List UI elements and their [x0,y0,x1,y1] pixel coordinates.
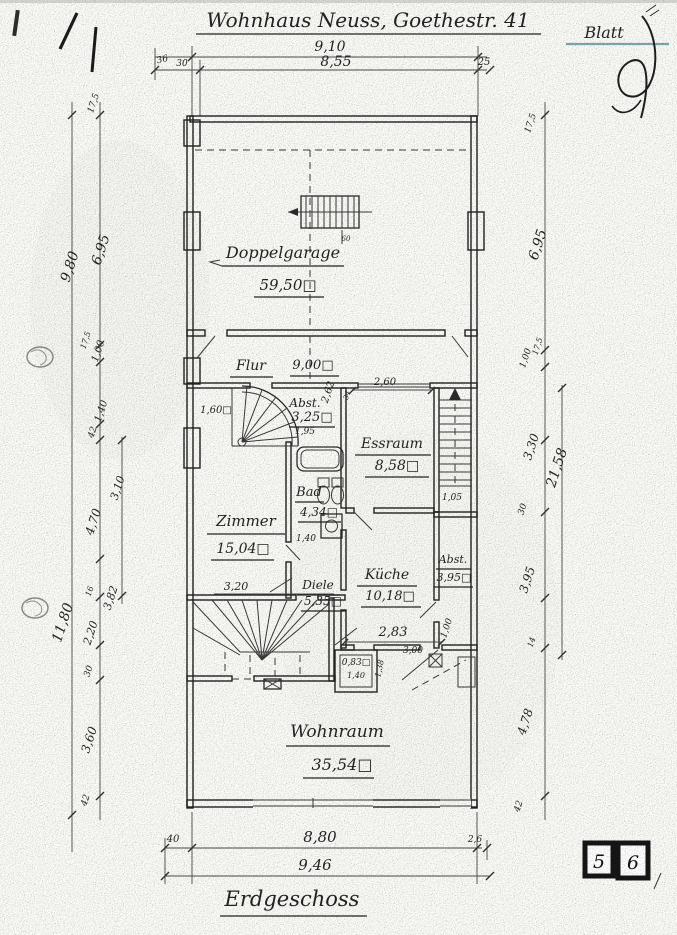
scanned-floor-plan-page: Wohnhaus Neuss, Goethestr. 41 Blatt 9,10… [0,0,677,935]
floor-plan-drawing: Wohnhaus Neuss, Goethestr. 41 Blatt 9,10… [0,0,677,935]
